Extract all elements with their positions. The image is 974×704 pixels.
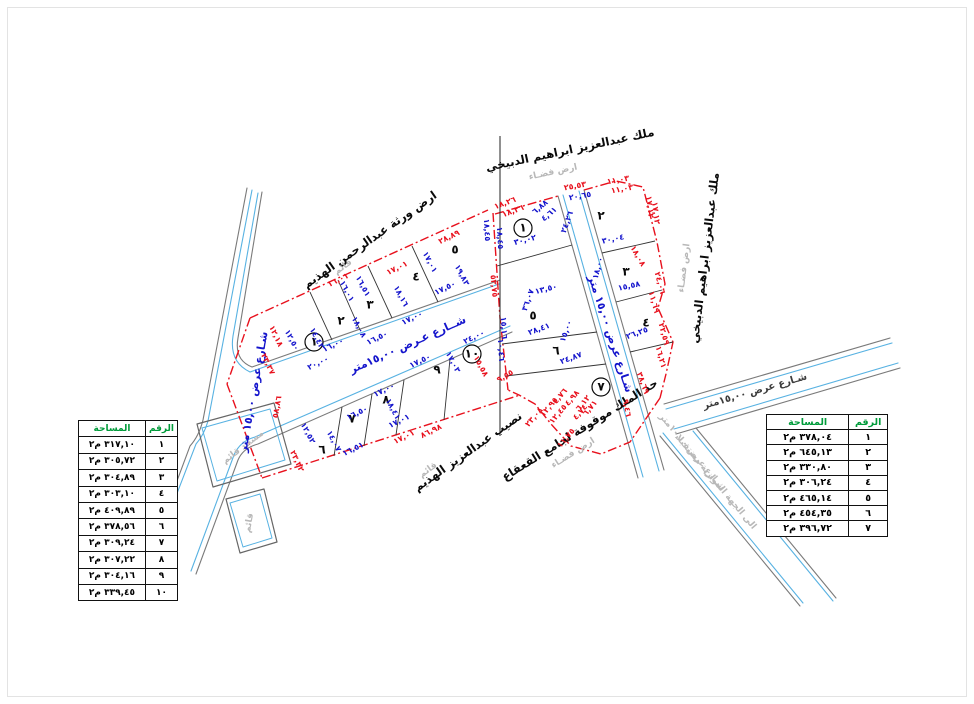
number-column-header: الرقم (145, 421, 177, 437)
plot-number: ٤ (412, 270, 419, 284)
plot-number: ٣ (622, 265, 630, 279)
plot-area-table-right: الرقم المساحة ١٣٧٨,٠٤ م٢٢٦٤٥,١٣ م٢٣٣٣٠,٨… (766, 414, 888, 537)
plot-number-cell: ٧ (849, 521, 888, 536)
plot-area-cell: ٣٠٧,٢٢ م٢ (79, 552, 146, 568)
dimension-label: ٢٣,٣٢ (288, 449, 306, 473)
plot-number-cell: ١ (145, 437, 177, 453)
plot-area-cell: ٣٠٣,١٠ م٢ (79, 486, 146, 502)
dimension-label: ٢٦,٢٥ (625, 325, 649, 341)
dimension-label: ١٦,٥٠ (345, 404, 369, 422)
plot-area-cell: ٤٥٤,٣٥ م٢ (767, 506, 849, 521)
plot-number: ١ (519, 221, 526, 235)
table-row: ٣٣٠٤,٨٩ م٢ (79, 470, 178, 486)
dimension-label: ٢٠,٦٥ (568, 190, 592, 203)
plot-area-cell: ٣٠٤,١٦ م٢ (79, 568, 146, 584)
plot-number: ٢ (597, 209, 605, 223)
table-row: ٣٣٣٠,٨٠ م٢ (767, 460, 888, 475)
plot-number: ٥ (451, 243, 458, 257)
plot-area-cell: ٤٠٩,٨٩ م٢ (79, 502, 146, 518)
table-row: ٥٤٦٥,١٤ م٢ (767, 490, 888, 505)
table-row: ١٣١٧,١٠ م٢ (79, 437, 178, 453)
dimension-label: ١٥,١٦ (499, 316, 509, 339)
plot-area-cell: ٣٠٥,٧٢ م٢ (79, 453, 146, 469)
plot-number: ٣ (366, 298, 374, 312)
table-row: ٩٣٠٤,١٦ م٢ (79, 568, 178, 584)
dimension-label: ١٨,٤٥ (495, 226, 505, 249)
table-row: ٧٣٠٩,٢٤ م٢ (79, 535, 178, 551)
table-header-row: الرقم المساحة (79, 421, 178, 437)
plot-area-cell: ٣٠٩,٢٤ م٢ (79, 535, 146, 551)
dimension-label: ١٨,١٦ (392, 284, 411, 308)
dimension-label: ١٧,٠٠ (400, 309, 424, 327)
table-row: ٨٣٠٧,٢٢ م٢ (79, 552, 178, 568)
vacant-land-note: ارض فضـاء (528, 162, 578, 182)
dimension-label: ١٥,٠٠ (558, 319, 574, 343)
dimension-label: ١٣,٥٠ (534, 282, 558, 296)
dimension-label: ١٧,٥٠ (408, 352, 432, 370)
plot-area-cell: ٤٦٥,١٤ م٢ (767, 490, 849, 505)
plot-area-cell: ٣٠٦,٢٤ م٢ (767, 475, 849, 490)
existing-note: قائم (243, 512, 256, 533)
plot-number-cell: ١٠ (145, 584, 177, 600)
table-row: ٧٣٩٦,٧٢ م٢ (767, 521, 888, 536)
dimension-label: ١٥,٥٨ (472, 354, 491, 378)
plot-number-cell: ٥ (849, 490, 888, 505)
vacant-land-note: ارض فضـاء (677, 243, 693, 293)
plot-number: ٦ (318, 443, 325, 457)
plot-number-cell: ٩ (145, 568, 177, 584)
plot-number-cell: ٤ (849, 475, 888, 490)
dimension-label: ١٧,٥٠ (433, 279, 457, 297)
plot-area-cell: ٣٣٩,٤٥ م٢ (79, 584, 146, 600)
plot-number-cell: ٨ (145, 552, 177, 568)
dimension-label: ١٦,٥٠ (365, 329, 389, 347)
plot-number: ٦ (552, 344, 559, 358)
boundary-note-mosque-endowment: حد الملك موقوفة لجامع القعقاع (499, 376, 661, 485)
plot-area-cell: ٣١٧,١٠ م٢ (79, 437, 146, 453)
dimension-label: ١٧,٠١ (392, 428, 416, 446)
plot-number-cell: ٣ (849, 460, 888, 475)
area-column-header: المساحة (79, 421, 146, 437)
dimension-label: ١٧,٠٣ (444, 350, 463, 374)
table-row: ٤٣٠٣,١٠ م٢ (79, 486, 178, 502)
dimension-label: ٢٢,٥٩ (657, 322, 672, 346)
dimension-label: ٢٤,٨٧ (559, 350, 583, 366)
plot-number-cell: ١ (849, 430, 888, 445)
dimension-label: ٢٤,٠٠ (462, 328, 486, 346)
dimension-label: ١٦,٥١ (341, 440, 365, 458)
dimension-label: ٩,٥٥ (495, 368, 515, 385)
dimension-label: ١٧,١٢ (650, 201, 662, 225)
table-row: ٢٦٤٥,١٣ م٢ (767, 445, 888, 460)
dimension-label: ١٥,٥٨ (617, 279, 641, 293)
dimension-label: ١٩,٨٣ (453, 263, 472, 287)
dimension-label: ٣٠,٠٤ (601, 232, 625, 246)
dimension-label: ١٨,٠٨ (628, 244, 647, 268)
dimension-label: ١٦,٢١ (654, 345, 669, 369)
plot-number: ٩ (433, 363, 441, 377)
plot-number-cell: ٣ (145, 470, 177, 486)
dimension-label: ٩,٤٦ (621, 399, 633, 418)
plot-number-cell: ٢ (849, 445, 888, 460)
dimension-label: ١٨,٤٥ (482, 218, 492, 241)
table-row: ٢٣٠٥,٧٢ م٢ (79, 453, 178, 469)
dimension-label: ٥٨,٨٦ (271, 395, 284, 419)
plot-area-cell: ٣٧٨,٥٦ م٢ (79, 519, 146, 535)
future-street-note: الى الجهة الموازية مستقبلا (673, 433, 758, 531)
dimension-label: ٢٠,٠٠ (306, 354, 330, 372)
dimension-label: ١٠,٤٦ (496, 338, 506, 361)
plot-number-cell: ٦ (849, 506, 888, 521)
dimension-label: ١٧,٠١ (385, 259, 409, 277)
table-row: ١٣٧٨,٠٤ م٢ (767, 430, 888, 445)
number-column-header: الرقم (849, 415, 888, 430)
plot-number: ٢ (337, 314, 345, 328)
area-column-header: المساحة (767, 415, 849, 430)
table-row: ٤٣٠٦,٢٤ م٢ (767, 475, 888, 490)
table-header-row: الرقم المساحة (767, 415, 888, 430)
table-row: ١٠٣٣٩,٤٥ م٢ (79, 584, 178, 600)
dimension-label: ١٢,٥٠ (283, 328, 302, 352)
dimension-label: ٨٦,٩٨ (419, 422, 443, 440)
survey-plan-canvas: ملك عبدالعزيز ابراهيم الدبيخيارض فضـاءمل… (0, 0, 974, 704)
plot-area-table-left: الرقم المساحة ١٣١٧,١٠ م٢٢٣٠٥,٧٢ م٢٣٣٠٤,٨… (78, 420, 178, 601)
dimension-label: ٥٣,٧٥ (489, 274, 500, 297)
plot-number: ٥ (529, 309, 536, 323)
plot-number-cell: ٥ (145, 502, 177, 518)
dimension-label: ٢٨,٤١ (527, 321, 551, 337)
plot-area-cell: ٣٣٠,٨٠ م٢ (767, 460, 849, 475)
plot-number: ٧ (597, 380, 605, 394)
table-row: ٦٤٥٤,٣٥ م٢ (767, 506, 888, 521)
plot-number-cell: ٤ (145, 486, 177, 502)
plot-area-cell: ٣٩٦,٧٢ م٢ (767, 521, 849, 536)
owner-label-right: ملك عبدالعزيز ابراهيم الدبيخي (687, 172, 722, 344)
plot-area-cell: ٦٤٥,١٣ م٢ (767, 445, 849, 460)
drawing-labels: ملك عبدالعزيز ابراهيم الدبيخيارض فضـاءمل… (221, 125, 809, 534)
table-row: ٥٤٠٩,٨٩ م٢ (79, 502, 178, 518)
plot-area-cell: ٣٧٨,٠٤ م٢ (767, 430, 849, 445)
table-row: ٦٣٧٨,٥٦ م٢ (79, 519, 178, 535)
plot-area-cell: ٣٠٤,٨٩ م٢ (79, 470, 146, 486)
dimension-label: ١٦,٥١ (354, 274, 373, 298)
dimension-label: ١٢,٥٢ (299, 421, 318, 445)
plot-number-cell: ٧ (145, 535, 177, 551)
plot-number-cell: ٦ (145, 519, 177, 535)
plot-number-cell: ٢ (145, 453, 177, 469)
